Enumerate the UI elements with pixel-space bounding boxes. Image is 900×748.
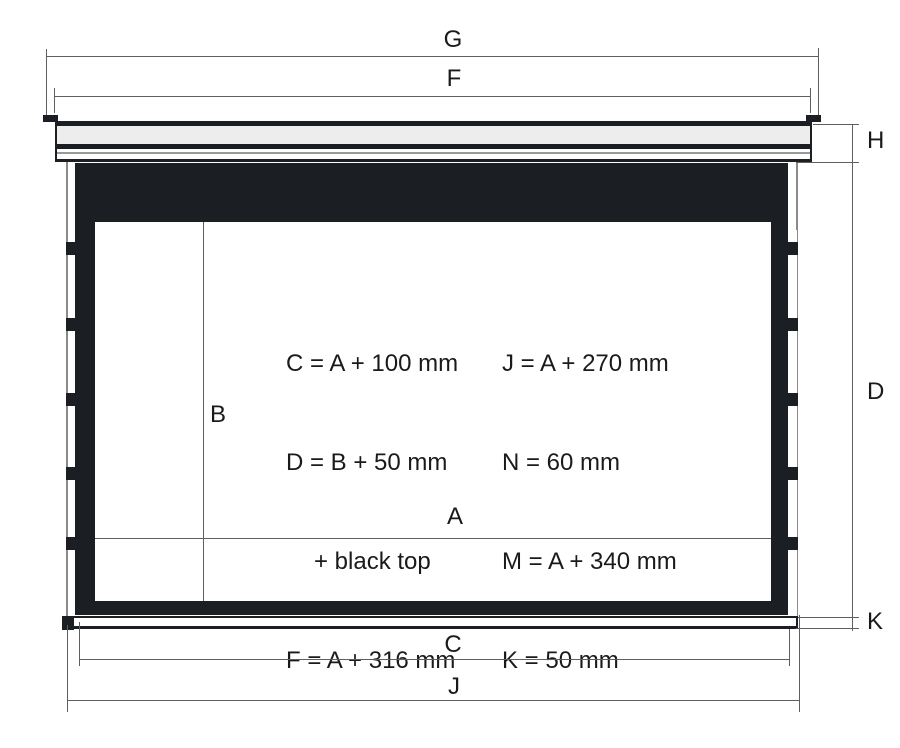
dim-ext-f-left	[54, 88, 55, 113]
tension-tab	[788, 318, 798, 331]
dim-label-b: B	[210, 403, 226, 427]
dim-ext-j-left	[67, 625, 68, 712]
dim-label-k: K	[867, 610, 883, 634]
dim-label-j: J	[448, 675, 460, 699]
bottom-slat-left-cap	[62, 616, 74, 630]
tension-tab	[788, 537, 798, 550]
tension-tab	[66, 318, 76, 331]
dim-label-f: F	[447, 67, 462, 91]
bottom-slat	[62, 616, 798, 629]
tension-tab	[788, 242, 798, 255]
tension-tab	[66, 393, 76, 406]
dim-label-c: C	[444, 633, 461, 657]
dim-ext-k-top	[798, 617, 859, 618]
ref-line-b	[203, 222, 204, 601]
dim-line-g	[46, 56, 818, 57]
dim-ext-f-right	[810, 88, 811, 113]
formula-line: + black top	[286, 545, 458, 578]
dim-line-c	[79, 659, 789, 660]
formula-line: M = A + 340 mm	[502, 545, 677, 578]
dim-line-j	[67, 700, 799, 701]
formula-column-right: J = A + 270 mm N = 60 mm M = A + 340 mm …	[502, 281, 677, 748]
formula-line: C = A + 100 mm	[286, 347, 458, 380]
dim-ext-g-left	[46, 49, 47, 115]
tension-tab	[66, 242, 76, 255]
housing	[55, 121, 812, 162]
tension-tab	[788, 467, 798, 480]
dim-line-f	[54, 96, 810, 97]
cord-channel-right	[789, 230, 797, 617]
dim-label-d: D	[867, 380, 884, 404]
cord-channel-left	[68, 230, 75, 617]
dim-ext-h-bottom	[796, 162, 859, 163]
dim-ext-c-right	[789, 629, 790, 666]
formula-line: G = A + 368 mm	[502, 743, 677, 748]
tension-tab	[788, 393, 798, 406]
dim-line-right-vertical	[852, 124, 853, 631]
formula-line: H = 105 mm	[286, 743, 458, 748]
dim-label-g: G	[444, 28, 463, 52]
dim-ext-g-right	[818, 48, 819, 115]
screen-dimension-diagram: G F A B C = A + 100 mm D = B + 50 mm + b…	[0, 0, 900, 748]
dim-ext-k-bottom	[796, 628, 859, 629]
dim-ext-j-right	[799, 615, 800, 712]
tension-tab	[66, 537, 76, 550]
formula-line: N = 60 mm	[502, 446, 677, 479]
formula-column-left: C = A + 100 mm D = B + 50 mm + black top…	[286, 281, 458, 748]
dim-ext-c-left	[79, 622, 80, 666]
formula-line: F = A + 316 mm	[286, 644, 458, 677]
formula-line: K = 50 mm	[502, 644, 677, 677]
dim-label-h: H	[867, 129, 884, 153]
formula-line: J = A + 270 mm	[502, 347, 677, 380]
tension-tab	[66, 467, 76, 480]
formula-line: D = B + 50 mm	[286, 446, 458, 479]
